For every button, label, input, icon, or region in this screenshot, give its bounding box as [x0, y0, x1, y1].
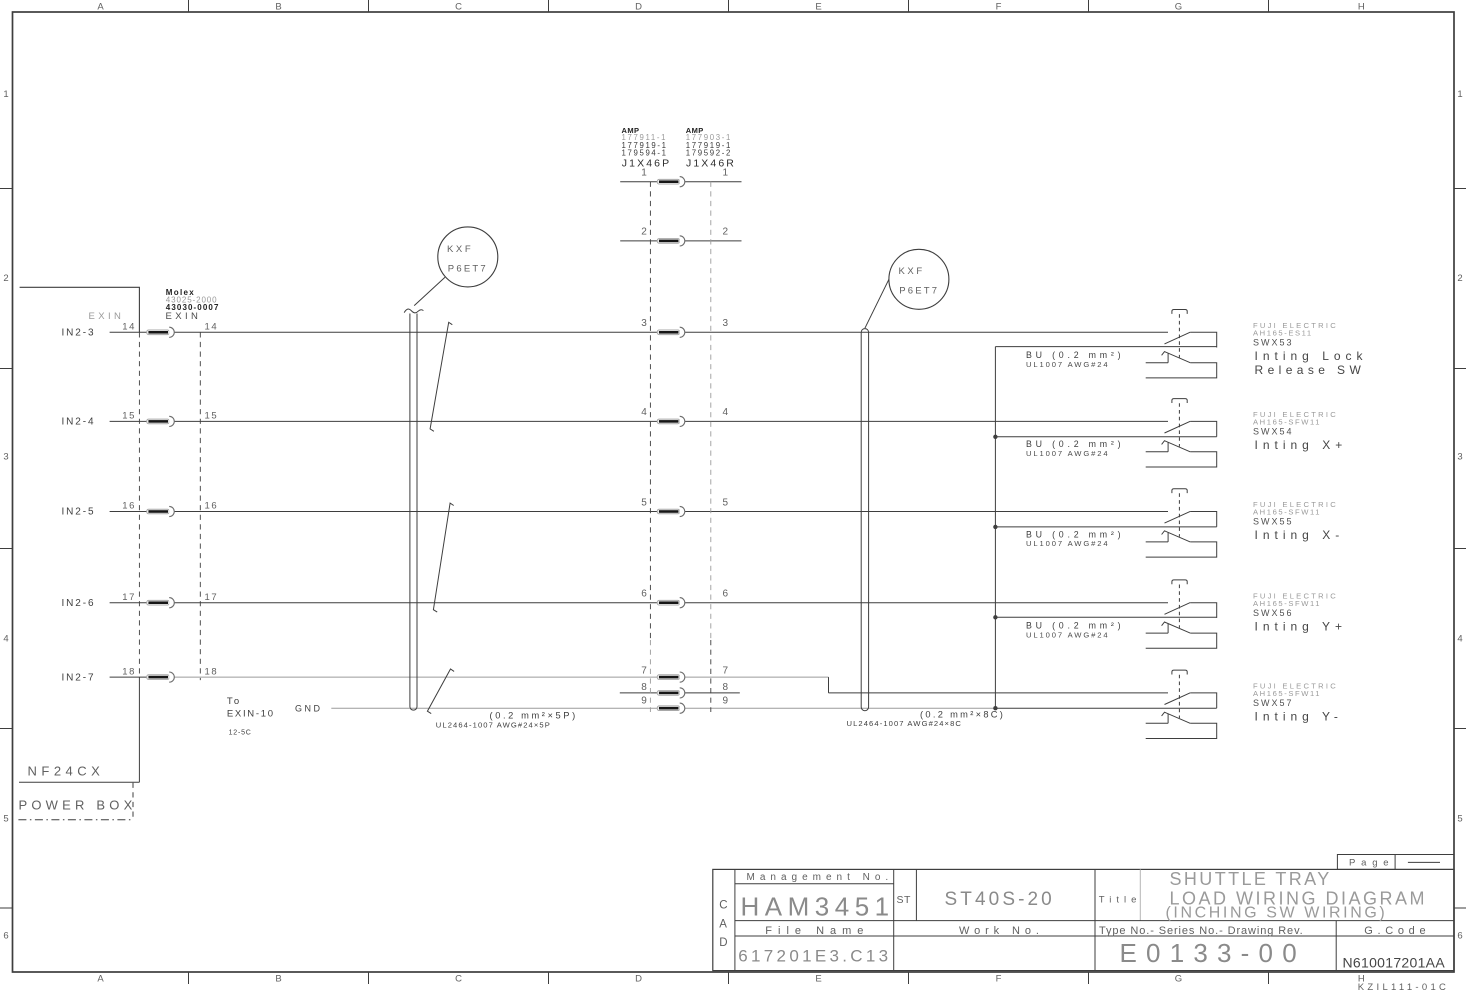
- svg-text:Title: Title: [1099, 895, 1142, 906]
- svg-text:4: 4: [641, 407, 647, 418]
- svg-text:A: A: [97, 2, 104, 13]
- svg-text:H: H: [1358, 2, 1365, 13]
- svg-text:14: 14: [205, 322, 219, 333]
- svg-text:File Name: File Name: [765, 925, 869, 937]
- svg-text:Inting X-: Inting X-: [1255, 528, 1345, 542]
- svg-text:Page: Page: [1349, 857, 1394, 868]
- svg-text:Inting Y+: Inting Y+: [1255, 619, 1347, 633]
- svg-text:4: 4: [3, 634, 8, 645]
- svg-text:BU (0.2 mm²): BU (0.2 mm²): [1026, 350, 1124, 360]
- svg-text:A: A: [97, 974, 104, 985]
- svg-text:1: 1: [1457, 89, 1462, 100]
- svg-text:12-5C: 12-5C: [229, 730, 252, 737]
- svg-text:179594-1: 179594-1: [622, 149, 668, 158]
- svg-text:(INCHING SW WIRING): (INCHING SW WIRING): [1166, 905, 1388, 922]
- svg-text:3: 3: [723, 318, 729, 329]
- svg-text:SWX56: SWX56: [1253, 608, 1294, 618]
- svg-text:7: 7: [641, 665, 647, 676]
- svg-text:2: 2: [3, 273, 8, 284]
- svg-text:1: 1: [3, 89, 8, 100]
- svg-text:G.Code: G.Code: [1364, 925, 1430, 937]
- svg-text:3: 3: [641, 318, 647, 329]
- svg-text:UL1007 AWG#24: UL1007 AWG#24: [1026, 539, 1110, 548]
- svg-text:2: 2: [723, 227, 729, 238]
- svg-text:3: 3: [3, 452, 8, 463]
- svg-text:NF24CX: NF24CX: [28, 764, 105, 779]
- svg-text:SWX57: SWX57: [1253, 698, 1294, 708]
- svg-text:IN2-3: IN2-3: [62, 328, 96, 339]
- svg-text:7: 7: [723, 665, 729, 676]
- svg-text:G: G: [1175, 974, 1182, 985]
- svg-text:N610017201AA: N610017201AA: [1343, 955, 1446, 971]
- svg-text:179592-2: 179592-2: [686, 149, 732, 158]
- svg-text:BU (0.2 mm²): BU (0.2 mm²): [1026, 439, 1124, 449]
- svg-text:G: G: [1175, 2, 1182, 13]
- svg-text:15: 15: [122, 411, 136, 422]
- svg-text:9: 9: [641, 696, 647, 707]
- svg-text:Management No.: Management No.: [747, 872, 894, 883]
- svg-text:Inting Y-: Inting Y-: [1255, 710, 1343, 724]
- svg-text:ST: ST: [897, 894, 912, 906]
- svg-text:POWER BOX: POWER BOX: [19, 798, 137, 813]
- svg-text:AH165-SFW11: AH165-SFW11: [1253, 418, 1321, 427]
- svg-text:17: 17: [205, 592, 219, 603]
- svg-text:6: 6: [1457, 931, 1462, 942]
- svg-text:(0.2 mm²×5P): (0.2 mm²×5P): [490, 711, 578, 721]
- svg-text:GND: GND: [295, 704, 323, 714]
- svg-text:A: A: [719, 919, 727, 931]
- svg-text:9: 9: [723, 696, 729, 707]
- svg-text:Type No.- Series No.- Drawing: Type No.- Series No.- Drawing Rev.: [1099, 925, 1304, 937]
- svg-text:AH165-SFW11: AH165-SFW11: [1253, 689, 1321, 698]
- svg-text:EXIN: EXIN: [89, 311, 125, 322]
- svg-text:B: B: [275, 2, 281, 13]
- svg-text:16: 16: [205, 501, 219, 512]
- svg-text:F: F: [996, 2, 1002, 13]
- svg-text:8: 8: [723, 682, 729, 693]
- svg-text:SWX55: SWX55: [1253, 517, 1294, 527]
- svg-text:UL2464-1007 AWG#24×5P: UL2464-1007 AWG#24×5P: [436, 720, 551, 729]
- svg-text:J1X46R: J1X46R: [686, 158, 736, 170]
- svg-text:C: C: [455, 2, 462, 13]
- svg-text:2: 2: [1457, 273, 1462, 284]
- svg-text:D: D: [719, 937, 727, 949]
- svg-text:IN2-7: IN2-7: [62, 672, 96, 683]
- svg-text:5: 5: [1457, 814, 1462, 825]
- svg-text:EXIN-10: EXIN-10: [227, 708, 275, 719]
- svg-text:5: 5: [723, 497, 729, 508]
- svg-text:14: 14: [122, 322, 136, 333]
- svg-text:EXIN: EXIN: [166, 311, 202, 322]
- svg-text:AH165-SFW11: AH165-SFW11: [1253, 508, 1321, 517]
- svg-text:C: C: [719, 900, 727, 912]
- svg-text:5: 5: [3, 814, 8, 825]
- svg-text:Release SW: Release SW: [1255, 363, 1366, 377]
- svg-text:ST40S-20: ST40S-20: [945, 889, 1055, 910]
- svg-text:16: 16: [122, 501, 136, 512]
- svg-text:IN2-5: IN2-5: [62, 507, 96, 518]
- svg-text:KXF: KXF: [899, 266, 925, 277]
- svg-text:P6ET7: P6ET7: [899, 286, 939, 297]
- svg-text:P6ET7: P6ET7: [448, 264, 488, 275]
- svg-text:To: To: [227, 696, 241, 707]
- svg-text:UL1007 AWG#24: UL1007 AWG#24: [1026, 360, 1110, 369]
- svg-text:E: E: [815, 2, 821, 13]
- svg-text:E0133-00: E0133-00: [1120, 938, 1306, 968]
- svg-text:C: C: [455, 974, 462, 985]
- svg-text:18: 18: [205, 666, 219, 677]
- svg-text:18: 18: [122, 666, 136, 677]
- svg-text:SWX54: SWX54: [1253, 427, 1294, 437]
- svg-text:SWX53: SWX53: [1253, 338, 1294, 348]
- svg-text:BU (0.2 mm²): BU (0.2 mm²): [1026, 529, 1124, 539]
- svg-text:2: 2: [641, 227, 647, 238]
- svg-text:SHUTTLE TRAY: SHUTTLE TRAY: [1170, 869, 1332, 889]
- svg-text:4: 4: [723, 407, 729, 418]
- svg-text:Inting X+: Inting X+: [1255, 438, 1348, 452]
- svg-text:5: 5: [641, 497, 647, 508]
- svg-text:AH165-ES11: AH165-ES11: [1253, 329, 1313, 338]
- svg-text:1: 1: [641, 168, 647, 179]
- svg-text:1: 1: [723, 168, 729, 179]
- svg-text:BU (0.2 mm²): BU (0.2 mm²): [1026, 621, 1124, 631]
- svg-text:KZIL111-01C: KZIL111-01C: [1358, 982, 1449, 992]
- svg-text:617201E3.C13: 617201E3.C13: [738, 947, 891, 966]
- svg-text:6: 6: [641, 589, 647, 600]
- svg-text:IN2-6: IN2-6: [62, 598, 96, 609]
- svg-text:4: 4: [1457, 634, 1462, 645]
- svg-text:F: F: [996, 974, 1002, 985]
- svg-text:17: 17: [122, 592, 136, 603]
- svg-text:Work No.: Work No.: [959, 925, 1044, 937]
- svg-text:IN2-4: IN2-4: [62, 417, 96, 428]
- svg-text:15: 15: [205, 411, 219, 422]
- svg-text:E: E: [815, 974, 821, 985]
- svg-text:B: B: [275, 974, 281, 985]
- svg-text:8: 8: [641, 682, 647, 693]
- svg-text:D: D: [635, 2, 642, 13]
- svg-text:HAM3451: HAM3451: [741, 892, 895, 922]
- svg-text:D: D: [635, 974, 642, 985]
- svg-text:6: 6: [723, 589, 729, 600]
- svg-text:3: 3: [1457, 452, 1462, 463]
- svg-text:KXF: KXF: [447, 244, 473, 255]
- svg-text:Inting Lock: Inting Lock: [1255, 349, 1368, 363]
- svg-text:UL1007 AWG#24: UL1007 AWG#24: [1026, 630, 1110, 639]
- svg-text:6: 6: [3, 931, 8, 942]
- svg-text:UL2464-1007 AWG#24×8C: UL2464-1007 AWG#24×8C: [847, 719, 962, 728]
- svg-text:AH165-SFW11: AH165-SFW11: [1253, 599, 1321, 608]
- svg-text:UL1007 AWG#24: UL1007 AWG#24: [1026, 449, 1110, 458]
